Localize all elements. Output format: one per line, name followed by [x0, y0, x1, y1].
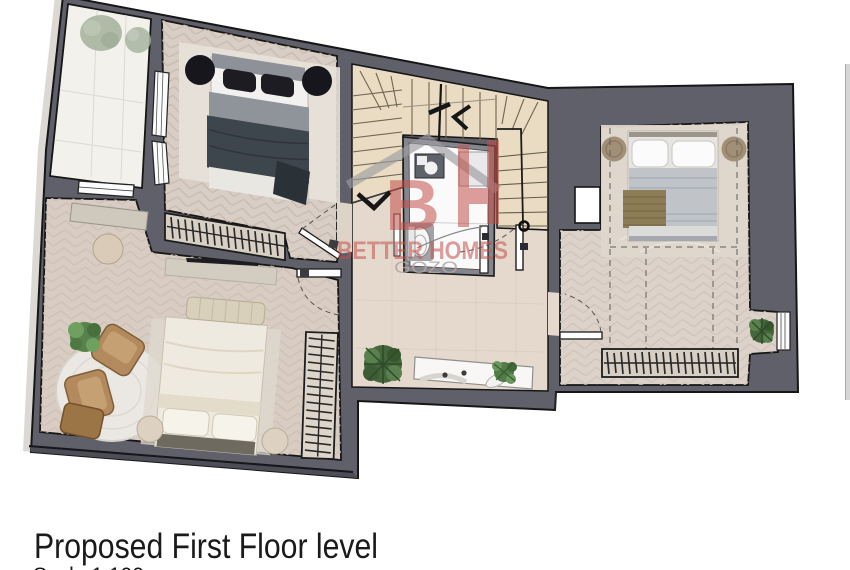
svg-text:Proposed First Floor level: Proposed First Floor level — [34, 527, 378, 566]
svg-text:B: B — [385, 166, 440, 246]
svg-text:Scale 1:100: Scale 1:100 — [33, 564, 144, 570]
svg-text:GOZO: GOZO — [394, 258, 458, 277]
